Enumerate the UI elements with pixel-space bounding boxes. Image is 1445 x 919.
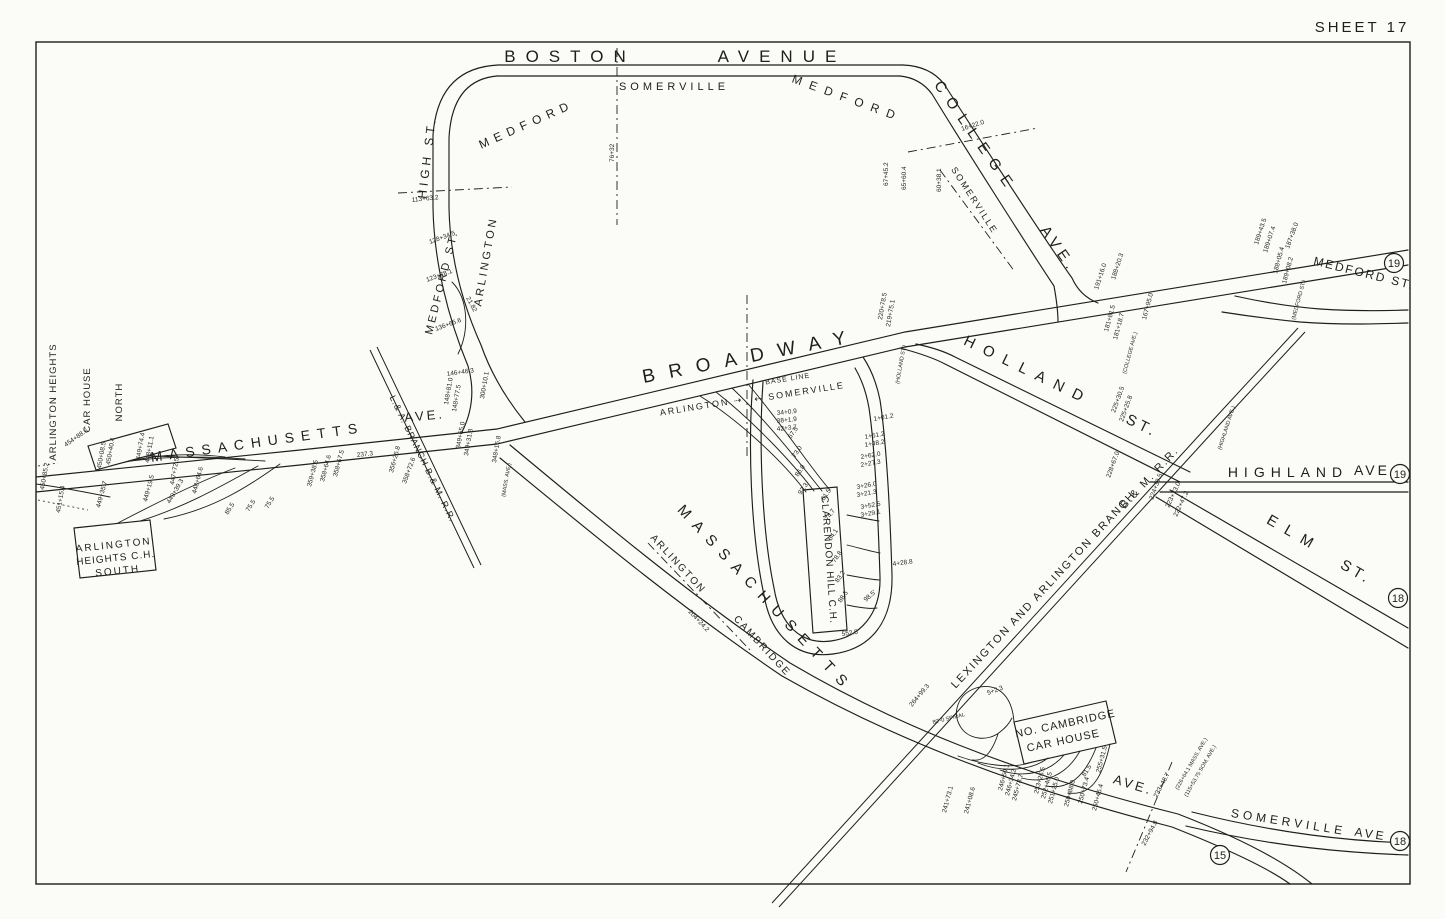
station-number-label: 241+08.6: [963, 786, 977, 815]
track-fan: [847, 575, 880, 580]
street-label-ave-south: AVE.: [1112, 772, 1155, 798]
street-label-broadway: BROADWAY: [641, 325, 862, 388]
street-label-massachusetts-west: MASSACHUSETTS: [150, 419, 366, 465]
station-number-label: 98.5': [863, 589, 878, 604]
city-label-arlington: ARLINGTON: [472, 216, 500, 308]
station-number-label: 75.5: [264, 495, 277, 510]
station-number-label: 81.5: [1081, 763, 1094, 778]
road-mass-ave-south-south-edge: [500, 458, 1290, 884]
station-number-label: 232+94.8: [1141, 819, 1160, 847]
station-number-label: 4+28.8: [892, 558, 913, 568]
station-number-label: 358+64.6: [319, 454, 333, 483]
station-number-label: 1+01.2: [873, 413, 894, 423]
station-number-label: 60+38.1: [936, 168, 943, 192]
station-number-label: 451+15.4: [55, 485, 67, 513]
street-label-high-st: HIGH ST.: [415, 116, 439, 200]
station-number-label: 85.5: [224, 501, 237, 516]
track-map-sheet: SHEET 17: [0, 0, 1445, 919]
street-label-elm-st: ST.: [1337, 556, 1375, 588]
station-number-label: 552.5: [841, 629, 858, 638]
station-number-label: (COLLEGE AVE.): [1122, 331, 1139, 374]
station-number-label: 449+19.5: [142, 474, 156, 503]
road-broadway-south-edge: [36, 265, 1408, 492]
railroad-lexington-branch-line1: [772, 328, 1298, 903]
route-badge-number: 19: [1388, 258, 1400, 270]
road-elm-east: [1170, 490, 1408, 628]
city-label-somerville-top: SOMERVILLE: [619, 81, 729, 93]
map-frame: [36, 42, 1410, 884]
station-number-label: 75.5: [245, 498, 258, 513]
street-label-somerville-ave: SOMERVILLE: [1230, 806, 1347, 838]
carhouse-label-arlington-heights-north-3: NORTH: [114, 383, 125, 422]
station-number-label: 300+10.1: [479, 371, 491, 399]
carhouse-label-arlington-heights-north-2: CAR HOUSE: [82, 367, 93, 432]
station-number-label: (MEDFORD ST.): [1291, 279, 1307, 320]
route-badge-number: 19: [1394, 469, 1406, 481]
street-and-place-labels: BOSTONAVENUECOLLEGEAVE.MEDFORDSOMERVILLE…: [48, 47, 1416, 843]
station-number-label: 188+20.3: [1110, 252, 1125, 280]
station-number-label: 65+60.4: [901, 166, 908, 190]
station-number-label: 250+45.4: [1091, 783, 1105, 812]
station-number-label: 358+67.5: [332, 449, 346, 478]
track-fan: [847, 545, 880, 553]
station-number-label: 67+45.2: [883, 162, 890, 186]
station-number-label: 255+31.5: [1095, 745, 1109, 774]
track-fan: [847, 605, 877, 608]
boundary-label-arlington: ARLINGTON ⇢: [659, 394, 744, 417]
map-canvas: SHEET 17: [0, 0, 1445, 919]
station-number-label: 80'-0 SPIRAL: [932, 712, 966, 726]
street-label-somerville-ave2: AVE: [1354, 825, 1388, 844]
street-label-highland: HIGHLAND: [1228, 464, 1348, 480]
railroad-label-lexington-branch: LEXINGTON AND ARLINGTON BRANCH: [949, 489, 1138, 691]
station-number-label: 86.0: [794, 463, 807, 478]
road-holland-north: [916, 344, 1190, 472]
station-number-label: (HOLLAND ST.): [895, 345, 908, 385]
station-number-label: 187+38.0: [1284, 221, 1300, 249]
street-label-college: COLLEGE: [930, 78, 1021, 197]
track-fan: [958, 756, 1032, 766]
station-number-label: 233+48.7: [1153, 771, 1172, 799]
street-label-highland-ave: AVE: [1354, 462, 1390, 478]
station-chainage-annotations: 76+3267+45.265+60.460+38.116+22.0191+16.…: [39, 119, 1307, 847]
station-number-label: 113+63.2: [411, 194, 439, 204]
station-number-label: 264+99.3: [908, 683, 931, 709]
route-badge-number: 15: [1214, 850, 1226, 862]
street-label-holland: HOLLAND: [961, 332, 1095, 409]
road-medford-branch-north: [1235, 296, 1408, 311]
city-label-medford-west: MEDFORD: [477, 97, 576, 152]
city-label-medford-east: MEDFORD: [790, 72, 904, 125]
station-number-label: 228+67.0: [1105, 450, 1121, 478]
station-number-label: 76+32: [609, 143, 616, 162]
track-fan: [732, 388, 822, 491]
route-badge-number: 18: [1394, 836, 1406, 848]
track-balloon-loop: [957, 686, 1014, 738]
street-label-boston: BOSTON: [504, 47, 635, 66]
station-number-label: 204+24.2: [687, 609, 711, 634]
station-number-label: 448+64.6: [191, 466, 205, 495]
station-number-label: 454+88.6: [63, 427, 90, 449]
station-number-label: 356+26.8: [388, 445, 402, 474]
sheet-title: SHEET 17: [1315, 19, 1410, 36]
station-number-label: 358+72.6: [401, 456, 417, 484]
route-number-badges: 1919181815: [1211, 254, 1410, 865]
street-label-holland-st: ST.: [1123, 411, 1161, 441]
street-label-avenue: AVENUE: [718, 47, 847, 66]
station-number-label: 191+16.0: [1093, 262, 1108, 290]
station-number-label: (MASS. AVE.): [501, 463, 513, 498]
station-number-label: 241+73.1: [941, 785, 955, 814]
station-number-label: 359+38.5: [306, 459, 320, 488]
station-number-label: 73.0: [791, 444, 804, 459]
route-badge-number: 18: [1392, 593, 1404, 605]
road-mass-ave-south-north-edge: [510, 445, 1312, 884]
road-medford-branch-south: [1222, 312, 1408, 324]
street-label-college-ave: AVE.: [1037, 223, 1081, 276]
carhouse-label-arlington-heights-north-1: ARLINGTON HEIGHTS: [48, 343, 59, 460]
